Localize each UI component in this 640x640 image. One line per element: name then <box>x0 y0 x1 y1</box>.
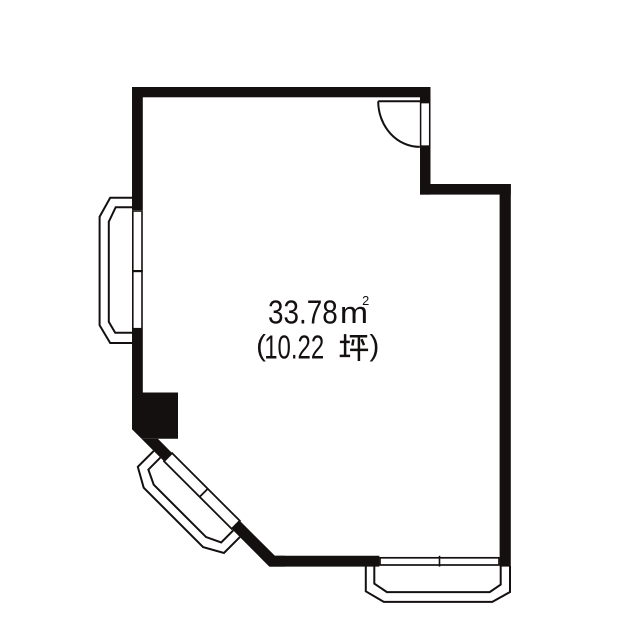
svg-text:10.22: 10.22 <box>264 328 324 365</box>
svg-text:2: 2 <box>362 293 369 308</box>
svg-text:33.78: 33.78 <box>268 294 338 331</box>
svg-text:): ) <box>370 330 380 363</box>
